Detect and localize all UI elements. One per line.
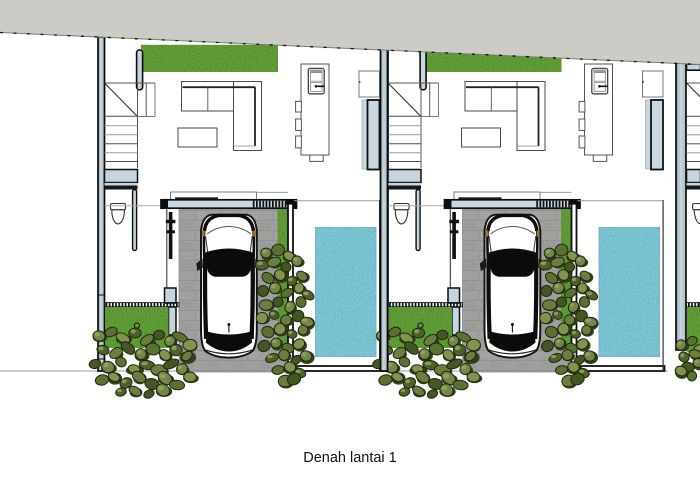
svg-text:Denah lantai 1: Denah lantai 1 bbox=[303, 450, 397, 466]
